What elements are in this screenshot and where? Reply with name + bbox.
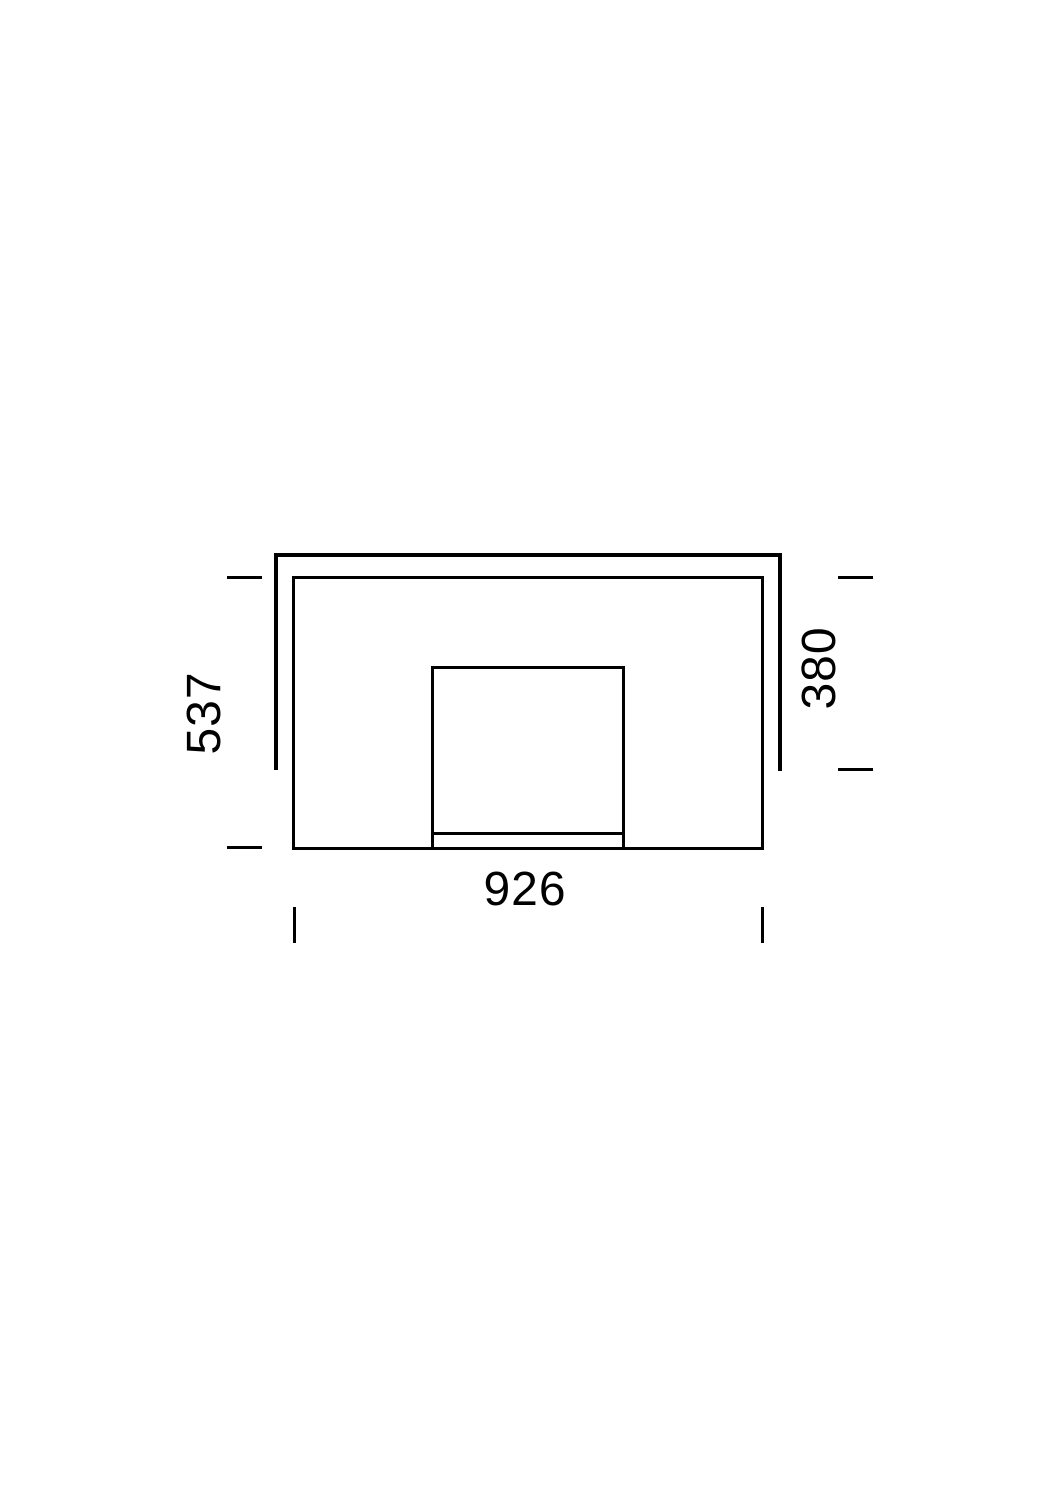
outer-outline-left-line — [274, 553, 278, 770]
left-dimension-bottom-tick — [227, 846, 262, 849]
right-dimension-label: 380 — [796, 626, 844, 709]
bottom-dimension-right-tick — [761, 907, 764, 943]
outer-outline-right-line — [778, 553, 782, 771]
technical-drawing-canvas: 537 380 926 — [0, 0, 1058, 1497]
inner-compartment-plinth-line — [431, 832, 625, 835]
bottom-dimension-left-tick — [293, 907, 296, 943]
left-dimension-top-tick — [227, 576, 262, 579]
outer-outline-top-line — [275, 553, 782, 557]
right-dimension-bottom-tick — [838, 768, 873, 771]
left-dimension-label: 537 — [181, 671, 229, 754]
bottom-dimension-label: 926 — [483, 866, 566, 914]
inner-compartment-outline — [431, 666, 625, 847]
right-dimension-top-tick — [838, 576, 873, 579]
